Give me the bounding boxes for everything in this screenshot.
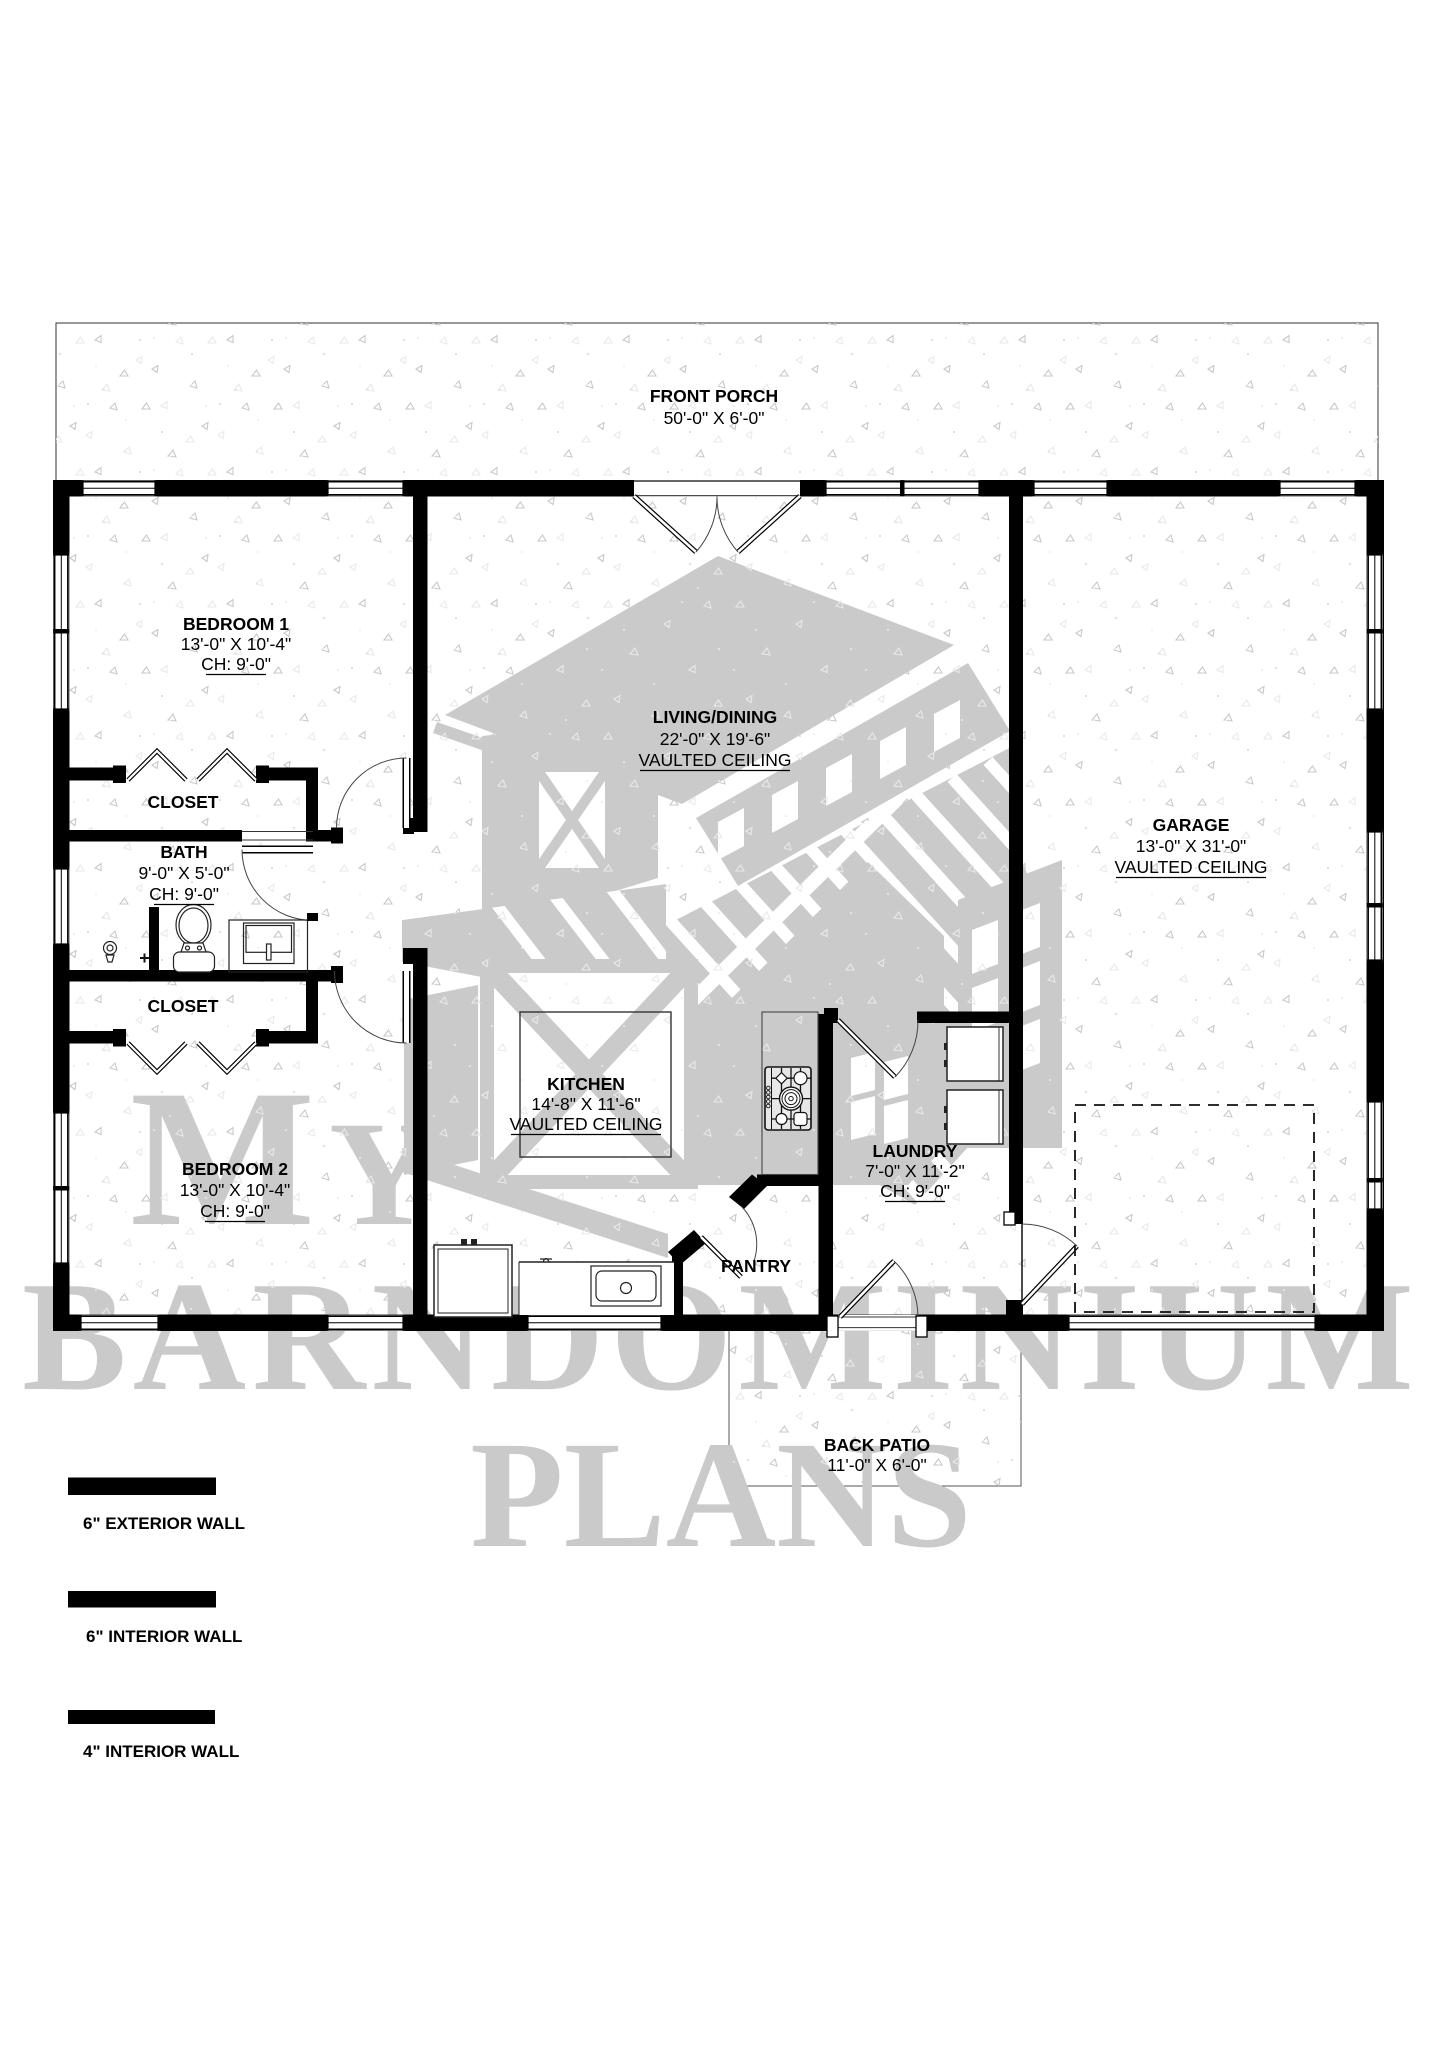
svg-text:BACK PATIO: BACK PATIO (824, 1435, 930, 1455)
svg-text:CLOSET: CLOSET (148, 792, 219, 812)
svg-text:9'-0" X 5'-0": 9'-0" X 5'-0" (138, 863, 229, 883)
svg-text:CH: 9'-0": CH: 9'-0" (149, 884, 219, 904)
svg-text:13'-0" X 10'-4": 13'-0" X 10'-4" (181, 634, 292, 654)
svg-text:CH: 9'-0": CH: 9'-0" (200, 1201, 270, 1221)
svg-text:CH: 9'-0": CH: 9'-0" (880, 1181, 950, 1201)
svg-text:CH: 9'-0": CH: 9'-0" (201, 654, 271, 674)
svg-text:PANTRY: PANTRY (721, 1256, 791, 1276)
svg-text:VAULTED CEILING: VAULTED CEILING (1115, 857, 1268, 877)
svg-text:LAUNDRY: LAUNDRY (873, 1141, 958, 1161)
svg-text:FRONT PORCH: FRONT PORCH (650, 386, 778, 406)
svg-text:LIVING/DINING: LIVING/DINING (653, 707, 777, 727)
svg-text:13'-0" X 10'-4": 13'-0" X 10'-4" (180, 1180, 291, 1200)
svg-text:50'-0" X 6'-0": 50'-0" X 6'-0" (664, 408, 765, 428)
svg-text:14'-8" X 11'-6": 14'-8" X 11'-6" (531, 1094, 640, 1114)
svg-text:11'-0" X 6'-0": 11'-0" X 6'-0" (827, 1455, 927, 1475)
svg-text:6" EXTERIOR WALL: 6" EXTERIOR WALL (83, 1514, 245, 1533)
svg-text:4" INTERIOR WALL: 4" INTERIOR WALL (83, 1742, 239, 1761)
svg-text:BATH: BATH (160, 842, 207, 862)
svg-text:22'-0" X 19'-6": 22'-0" X 19'-6" (660, 729, 771, 749)
svg-text:BEDROOM 2: BEDROOM 2 (182, 1159, 288, 1179)
svg-text:KITCHEN: KITCHEN (547, 1074, 625, 1094)
svg-text:6" INTERIOR WALL: 6" INTERIOR WALL (86, 1627, 242, 1646)
svg-text:7'-0" X 11'-2": 7'-0" X 11'-2" (865, 1161, 965, 1181)
svg-text:GARAGE: GARAGE (1153, 815, 1230, 835)
svg-text:VAULTED CEILING: VAULTED CEILING (639, 750, 792, 770)
svg-text:VAULTED CEILING: VAULTED CEILING (510, 1114, 663, 1134)
svg-text:13'-0" X 31'-0": 13'-0" X 31'-0" (1136, 836, 1247, 856)
svg-text:CLOSET: CLOSET (148, 996, 219, 1016)
svg-text:BEDROOM 1: BEDROOM 1 (183, 614, 289, 634)
